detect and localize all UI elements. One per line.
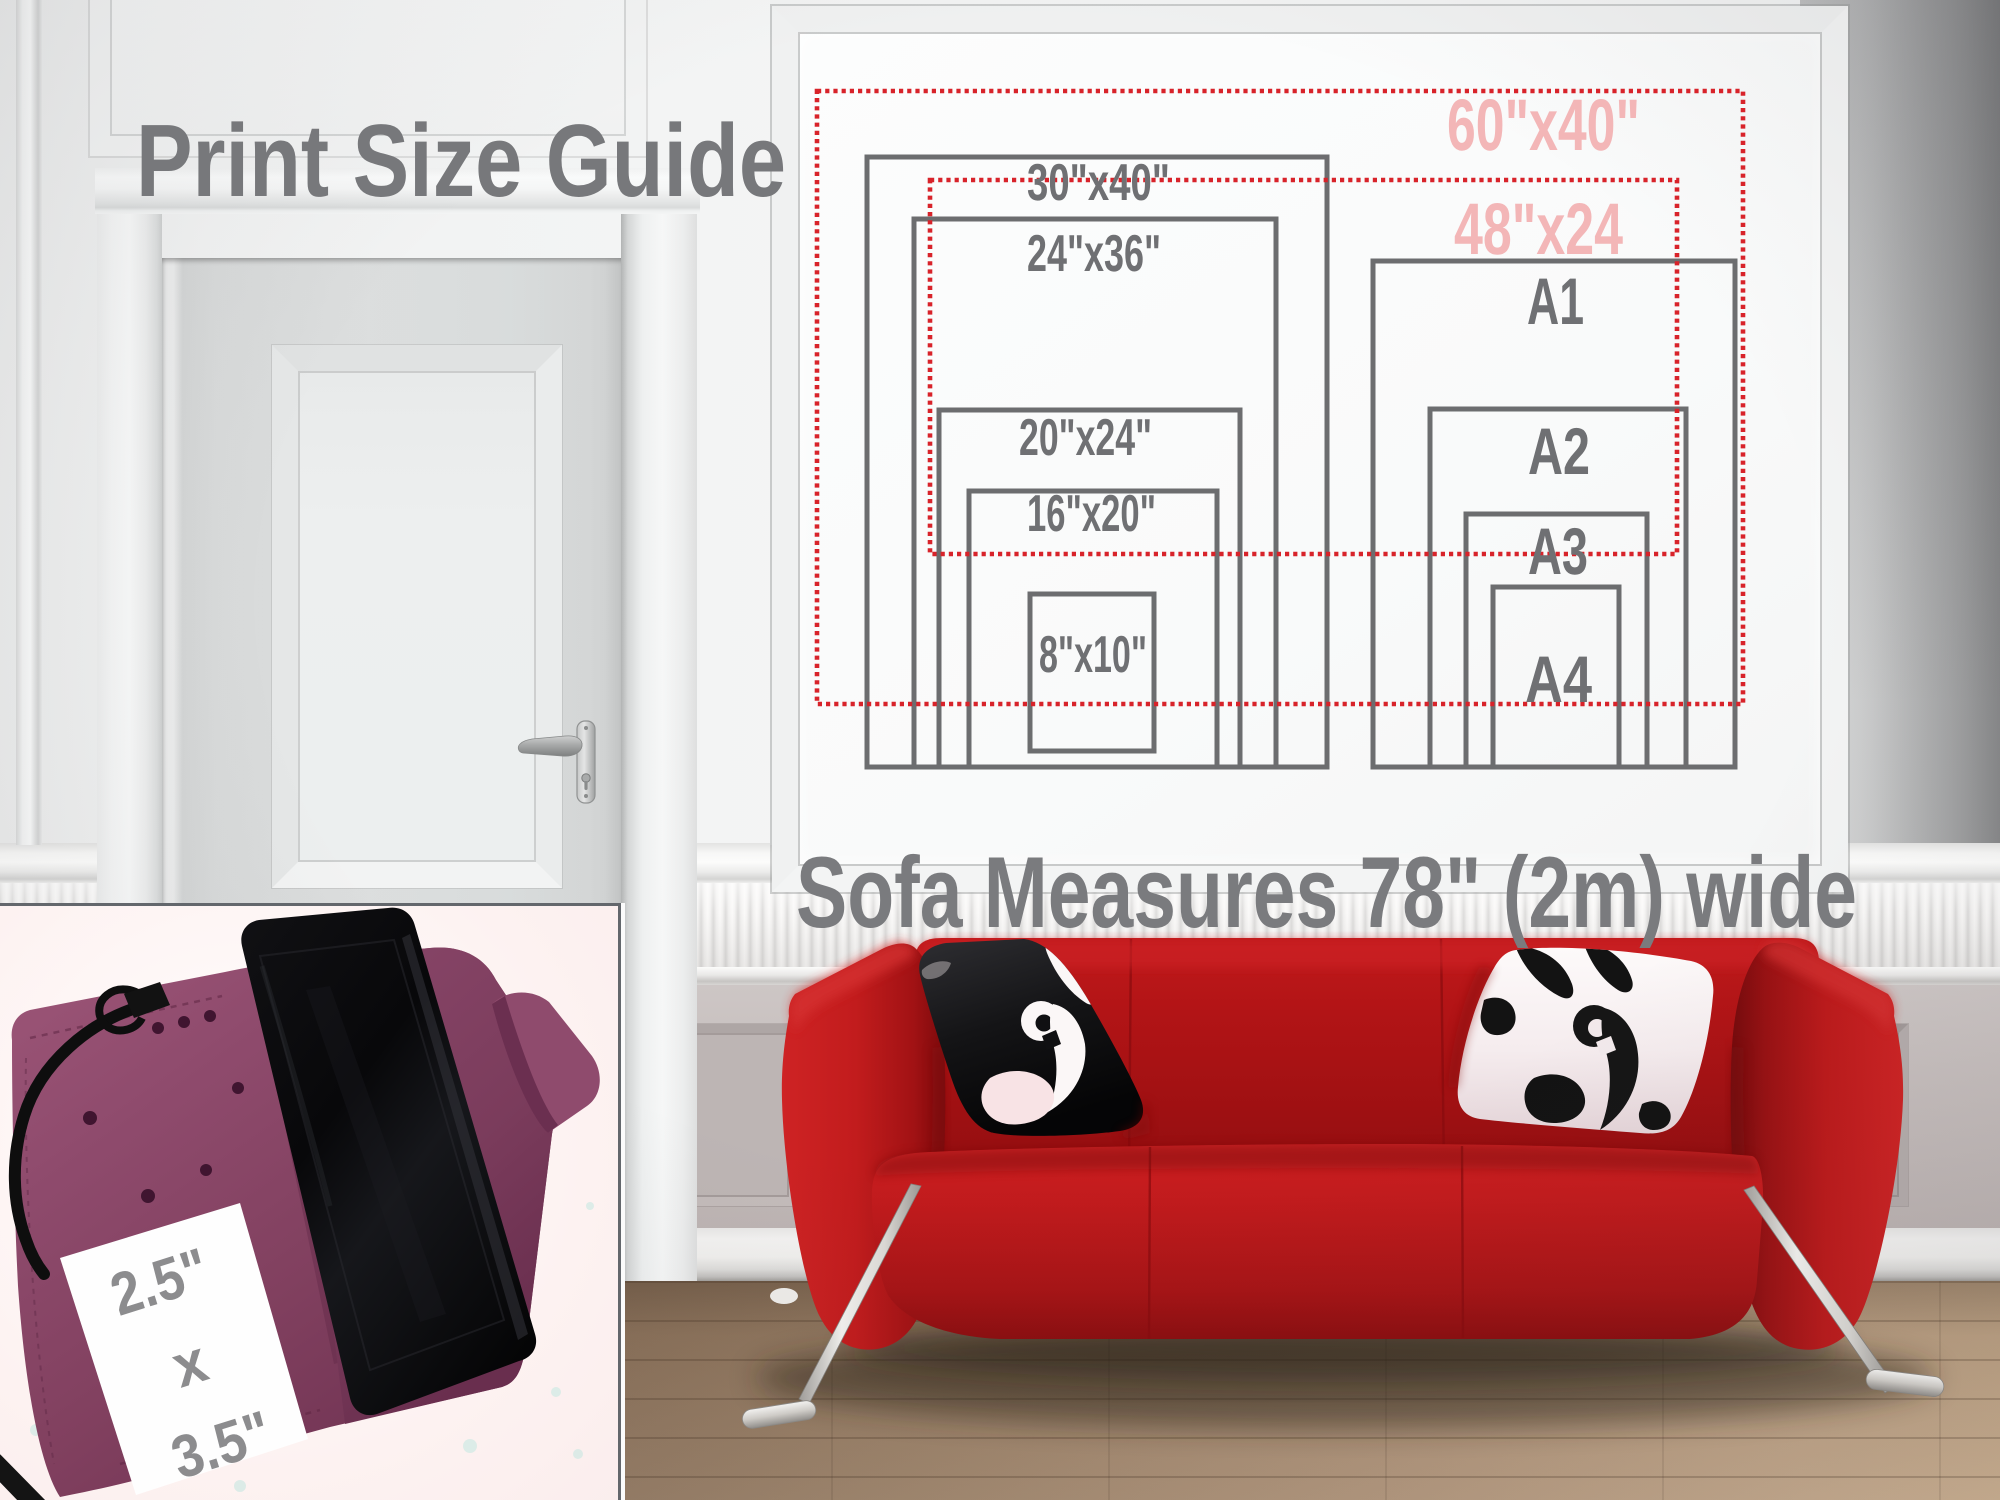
svg-text:16"x20": 16"x20" [1027, 485, 1156, 543]
svg-text:A3: A3 [1528, 514, 1588, 588]
svg-text:A1: A1 [1527, 264, 1584, 338]
svg-text:A2: A2 [1528, 414, 1590, 488]
svg-text:24"x36": 24"x36" [1027, 225, 1161, 283]
svg-text:20"x24": 20"x24" [1019, 409, 1152, 467]
svg-text:Print Size Guide: Print Size Guide [136, 103, 786, 218]
svg-text:48"x24: 48"x24 [1454, 189, 1623, 270]
svg-text:Sofa Measures 78" (2m) wide: Sofa Measures 78" (2m) wide [796, 837, 1857, 949]
svg-text:8"x10": 8"x10" [1039, 626, 1147, 684]
svg-text:30"x40": 30"x40" [1027, 154, 1170, 212]
svg-text:60"x40": 60"x40" [1447, 85, 1640, 166]
svg-text:A4: A4 [1525, 642, 1592, 716]
